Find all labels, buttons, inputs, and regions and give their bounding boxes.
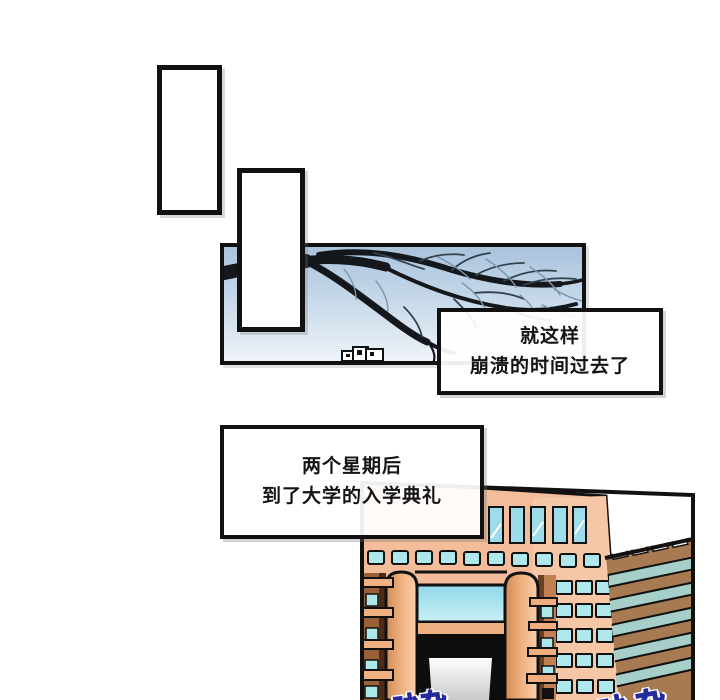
empty-panel-2: [237, 168, 305, 332]
narration-box-2: 两个星期后 到了大学的入学典礼: [220, 425, 484, 539]
narration-1-line-2: 崩溃的时间过去了: [470, 352, 630, 382]
narration-2-line-2: 到了大学的入学典礼: [262, 482, 442, 512]
narration-2-line-1: 两个星期后: [302, 452, 402, 482]
narration-1-line-1: 就这样: [520, 322, 580, 352]
entrance-beam: [417, 622, 505, 635]
side-building: [605, 535, 695, 700]
comic-page: 就这样 崩溃的时间过去了 两个星期后 到了大学的入学典礼 吵杂 吵杂: [0, 0, 720, 700]
transom-window: [417, 585, 505, 622]
empty-panel-1: [157, 65, 222, 215]
narration-box-1: 就这样 崩溃的时间过去了: [437, 308, 663, 395]
